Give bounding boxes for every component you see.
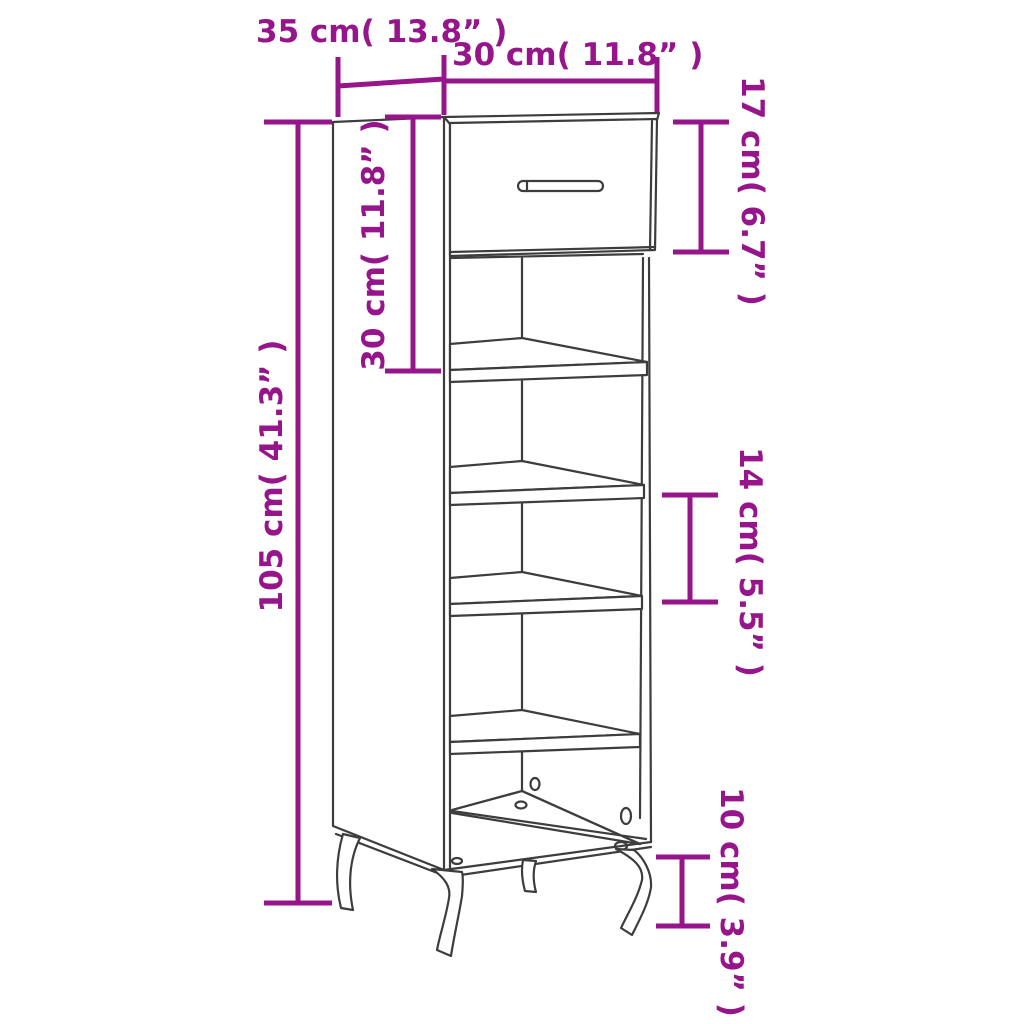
drawer <box>450 119 657 256</box>
product-dimension-diagram: 35 cm( 13.8” ) 30 cm( 11.8” ) 17 cm( 6.7… <box>0 0 1024 1024</box>
leg-back-right <box>522 860 536 892</box>
dim-top-section-label: 30 cm( 11.8” ) <box>356 119 392 370</box>
dim-total-height-label: 105 cm( 41.3” ) <box>254 340 290 613</box>
handle-bar <box>518 181 603 191</box>
dim-width-label: 30 cm( 11.8” ) <box>452 37 703 73</box>
drawer-handle <box>518 181 603 191</box>
dim-shelf-gap-label: 14 cm( 5.5” ) <box>732 447 768 677</box>
dim-leg-height-label: 10 cm( 3.9” ) <box>713 787 749 1017</box>
dim-drawer-height-label: 17 cm( 6.7” ) <box>734 76 770 306</box>
